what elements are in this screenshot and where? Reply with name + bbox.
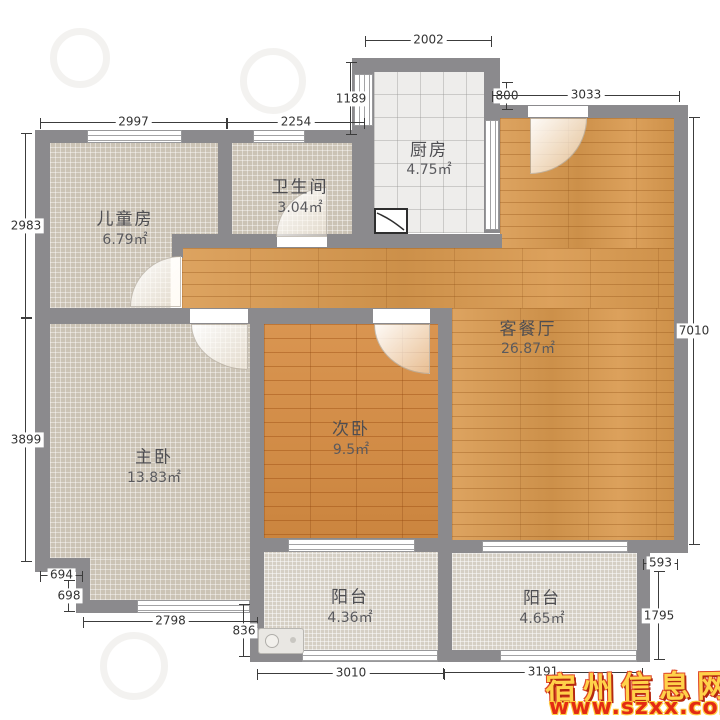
dim-value: 2997 bbox=[115, 115, 152, 128]
window-balcony-left-rail bbox=[302, 650, 438, 662]
dim-value: 2983 bbox=[9, 218, 44, 233]
dim-value: 3010 bbox=[333, 666, 370, 679]
room-label-children: 儿童房 bbox=[97, 205, 154, 230]
dim-balcony-right-offset: 593 bbox=[643, 563, 678, 564]
dim-balcony-right-height: 1795 bbox=[658, 571, 659, 660]
washer-knob-icon bbox=[290, 637, 296, 643]
washer-drum-icon bbox=[265, 634, 279, 648]
room-label-balcony-right: 阳台 bbox=[523, 584, 561, 609]
room-label-master: 主卧 bbox=[135, 443, 173, 468]
dim-value: 800 bbox=[494, 88, 521, 103]
room-label-living: 客餐厅 bbox=[500, 315, 557, 340]
window-second-south bbox=[288, 539, 415, 552]
dim-balcony-left-width: 3010 bbox=[257, 673, 445, 674]
dim-notch-width: 694 bbox=[40, 575, 83, 576]
dim-value: 698 bbox=[56, 588, 83, 603]
window-bathroom-north bbox=[253, 130, 305, 143]
window-master-south bbox=[137, 600, 250, 613]
dim-living-top-width: 3033 bbox=[492, 95, 680, 96]
room-area-children: 6.79㎡ bbox=[102, 229, 147, 249]
wall-children-bath-divider bbox=[218, 130, 232, 248]
room-area-living: 26.87㎡ bbox=[501, 338, 555, 358]
dim-value: 1795 bbox=[642, 608, 677, 623]
wall-top-left bbox=[35, 130, 365, 143]
dim-master-bottom-width: 2798 bbox=[83, 621, 258, 622]
wall-living-top bbox=[490, 105, 688, 118]
dim-children-width: 2997 bbox=[40, 122, 227, 123]
room-area-bathroom: 3.04㎡ bbox=[277, 197, 322, 217]
floor-living-room bbox=[452, 308, 674, 540]
floor-living-room bbox=[500, 118, 674, 248]
room-label-bathroom: 卫生间 bbox=[272, 173, 329, 198]
room-area-second: 9.5㎡ bbox=[333, 439, 369, 459]
room-area-kitchen: 4.75㎡ bbox=[406, 159, 451, 179]
second-bedroom-door-leaf bbox=[373, 309, 430, 323]
room-label-kitchen: 厨房 bbox=[410, 136, 448, 161]
wall-second-east bbox=[438, 308, 452, 662]
kitchen-window-symbol-icon bbox=[374, 208, 408, 234]
dim-notch-height: 698 bbox=[68, 580, 69, 612]
dim-kitchen-width: 2002 bbox=[365, 40, 492, 41]
floor-plan: 儿童房 6.79㎡ 卫生间 3.04㎡ 厨房 4.75㎡ 客餐厅 26.87㎡ … bbox=[0, 0, 720, 720]
ghost-logo-watermark bbox=[240, 48, 306, 114]
site-watermark-url: www.szxx.com.cn bbox=[549, 695, 720, 720]
room-label-balcony-left: 阳台 bbox=[331, 583, 369, 608]
dim-right-full-height: 7010 bbox=[693, 117, 694, 545]
dim-value: 3899 bbox=[9, 432, 44, 447]
wall-left-exterior bbox=[35, 130, 50, 558]
bathroom-door-leaf bbox=[277, 236, 327, 247]
room-area-balcony-right: 4.65㎡ bbox=[519, 608, 564, 628]
entry-door-leaf bbox=[528, 106, 588, 117]
window-swing-line bbox=[376, 210, 406, 232]
wall-kitchen-north bbox=[352, 58, 500, 72]
dim-value: 2002 bbox=[410, 33, 447, 46]
dim-value: 836 bbox=[231, 623, 258, 638]
room-area-master: 13.83㎡ bbox=[127, 467, 181, 487]
floor-hallway bbox=[182, 248, 674, 308]
dim-kitchen-depth: 1189 bbox=[350, 62, 351, 135]
window-living-south bbox=[482, 541, 628, 553]
dim-value: 3033 bbox=[568, 88, 605, 101]
dim-left-upper-height: 2983 bbox=[25, 133, 26, 318]
ghost-logo-watermark bbox=[100, 632, 168, 700]
ghost-logo-watermark bbox=[50, 28, 110, 88]
master-door-leaf bbox=[190, 309, 248, 323]
washing-machine-icon bbox=[258, 628, 304, 654]
dim-value: 593 bbox=[646, 556, 675, 569]
room-area-balcony-left: 4.36㎡ bbox=[327, 607, 372, 627]
window-children-north bbox=[87, 130, 182, 143]
dim-value: 2798 bbox=[152, 614, 189, 627]
floor-master-bedroom bbox=[90, 558, 250, 600]
dim-value: 1189 bbox=[334, 91, 369, 106]
dim-balcony-gap: 836 bbox=[243, 604, 244, 657]
room-label-second: 次卧 bbox=[332, 415, 370, 440]
dim-bathroom-width: 2254 bbox=[227, 122, 365, 123]
dim-kitchen-offset: 800 bbox=[506, 82, 507, 110]
dim-left-lower-height: 3899 bbox=[25, 318, 26, 562]
window-balcony-right-rail bbox=[500, 650, 637, 662]
dim-value: 7010 bbox=[677, 323, 712, 338]
kitchen-sliding-door bbox=[485, 120, 499, 230]
dim-value: 2254 bbox=[278, 115, 315, 128]
